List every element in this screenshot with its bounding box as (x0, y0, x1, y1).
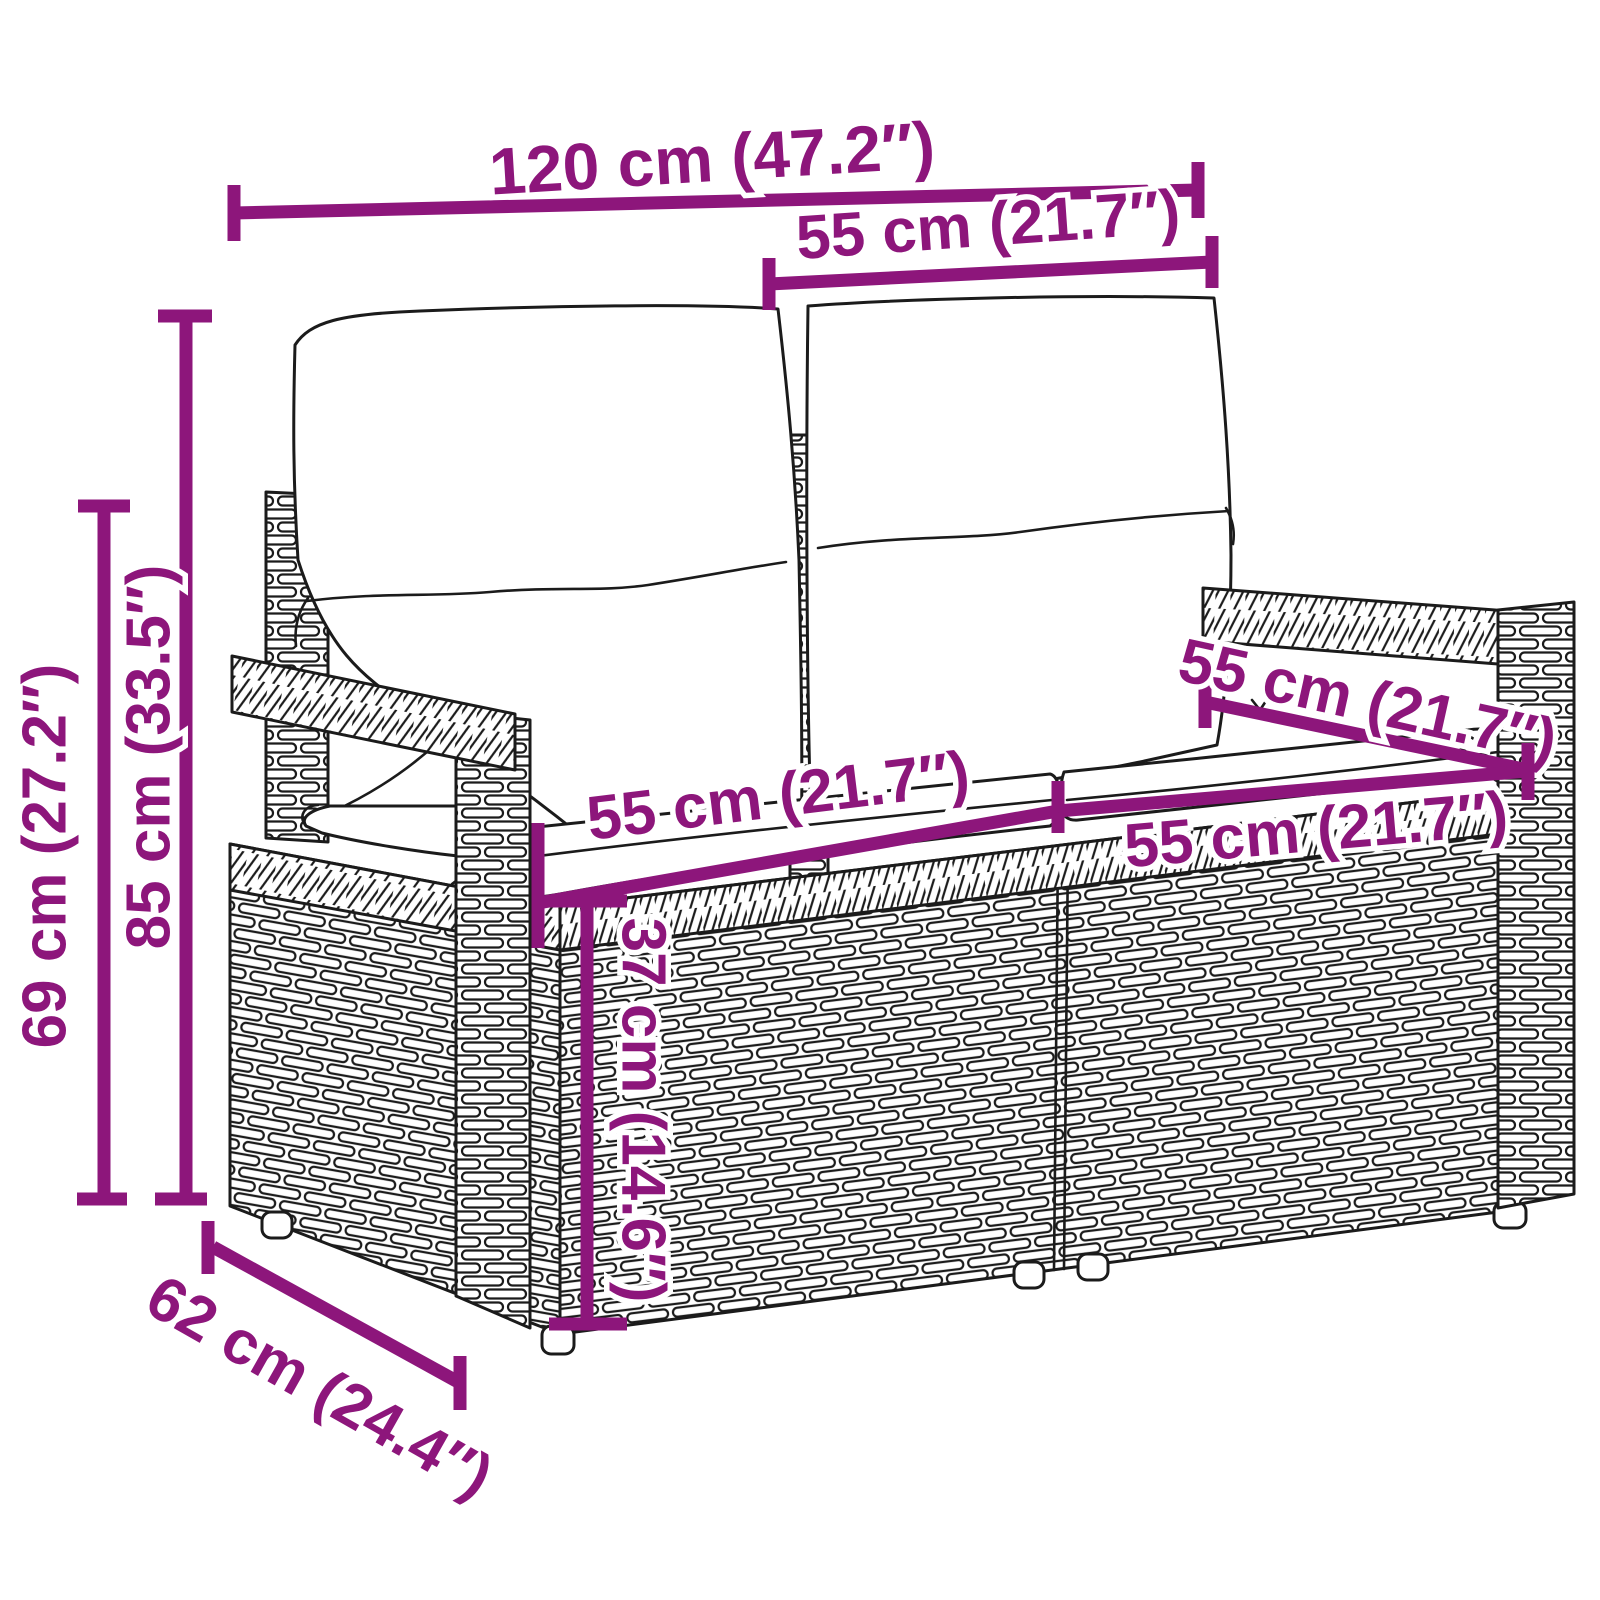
bench-dimension-drawing: 120 cm (47.2″) 55 cm (21.7″) 85 cm (33.5… (0, 0, 1600, 1600)
armrest-left-post (456, 712, 530, 1328)
dim-total-height: 85 cm (33.5″) (115, 316, 212, 1199)
armrest-right-stile (1498, 602, 1574, 1208)
dimension-diagram: 120 cm (47.2″) 55 cm (21.7″) 85 cm (33.5… (0, 0, 1600, 1600)
dim-label-armrest-height: 69 cm (27.2″) (11, 664, 80, 1049)
dim-label-seat-height: 37 cm (14.6″) (608, 918, 677, 1303)
dim-armrest-height: 69 cm (27.2″) (11, 506, 130, 1199)
dim-label-total-height: 85 cm (33.5″) (115, 565, 184, 950)
dim-label-back-section-width: 55 cm (21.7″) (794, 177, 1183, 273)
